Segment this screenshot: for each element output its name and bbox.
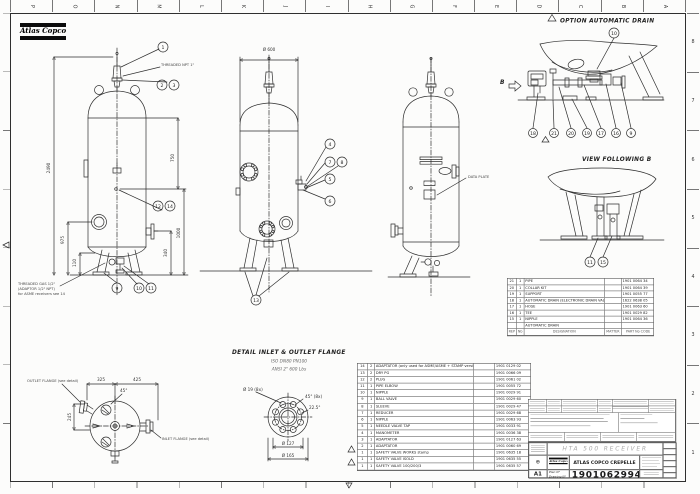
balloon-16: 16: [612, 129, 621, 138]
part-number: 1901 0127 63: [495, 437, 532, 443]
part-number: 1901 0064 39: [622, 285, 655, 291]
part-qty: 1: [368, 410, 375, 416]
part-number: 1901 0029 47: [495, 404, 532, 410]
part-qty: 1: [368, 437, 375, 443]
drain-parts-table: 21 1 PIPE 1901 0064 34 20 1 COLLAR KIT 1…: [507, 278, 654, 336]
part-rep: 20: [508, 285, 517, 291]
part-matter: [474, 417, 495, 423]
part-number: 1901 0029 60: [495, 397, 532, 403]
svg-text:B: B: [500, 80, 505, 86]
part-designation: HOSE: [524, 304, 604, 310]
svg-text:Ø 600: Ø 600: [263, 47, 276, 52]
part-qty: 1: [517, 291, 525, 297]
balloon-3: 3: [169, 80, 179, 90]
part-matter: [474, 397, 495, 403]
part-rep: 2: [358, 443, 368, 449]
svg-text:12: 12: [155, 204, 161, 210]
svg-text:975: 975: [60, 236, 65, 244]
part-qty: 1: [517, 316, 525, 322]
part-qty: 2: [368, 364, 375, 370]
balloon-17: 17: [597, 129, 606, 138]
parts-list-row: 9 1 BALL VALVE 1901 0029 60: [358, 397, 531, 404]
parts-list-row: 2 1 ADAPTATOR 1901 0060 69: [358, 443, 531, 450]
part-rep: 13: [358, 370, 368, 376]
balloon-8: 8: [337, 157, 347, 167]
svg-text:for ASME receivers see 14: for ASME receivers see 14: [18, 292, 66, 296]
part-rep: 18: [508, 298, 517, 304]
svg-text:OPTION AUTOMATIC DRAIN: OPTION AUTOMATIC DRAIN: [560, 19, 654, 25]
parts-list-row: 5 1 NEEDLE VALVE TAP 1901 0033 91: [358, 424, 531, 431]
part-qty: 1: [517, 304, 525, 310]
part-qty: 1: [517, 285, 525, 291]
svg-text:ISO DN80 PN100: ISO DN80 PN100: [271, 359, 307, 365]
part-rep: 11: [358, 384, 368, 390]
parts-list-row: 1 1 SAFETY VALVE ISOLD 1901 0635 55: [358, 457, 531, 464]
header-qty: Nb: [517, 329, 525, 335]
svg-text:45°: 45°: [120, 388, 127, 393]
svg-text:2: 2: [161, 83, 164, 89]
title-block: ⊕ A1 HTA 500 RECEIVER Atlas Copco ATLAS …: [528, 442, 676, 478]
edge-box: [663, 473, 677, 479]
svg-text:11: 11: [148, 286, 154, 292]
part-designation: NIPPLE: [524, 316, 604, 322]
svg-text:9: 9: [630, 131, 633, 137]
part-matter: [474, 364, 495, 370]
parts-list-row: 7 1 REDUCER 1901 0029 68: [358, 410, 531, 417]
part-designation: PIPE: [524, 279, 604, 285]
part-rep: 12: [358, 377, 368, 383]
svg-text:Ø 165: Ø 165: [282, 453, 295, 458]
part-qty: 1: [368, 450, 375, 456]
balloon-10b: 10: [609, 28, 619, 38]
part-rep: 15: [508, 316, 517, 322]
svg-text:10: 10: [611, 31, 617, 37]
part-rep: 14: [358, 364, 368, 370]
balloon-21: 21: [550, 129, 559, 138]
part-matter: [605, 316, 622, 322]
part-designation: SLEEVE: [375, 404, 474, 410]
part-qty: 1: [368, 424, 375, 430]
balloon-13: 13: [251, 295, 261, 305]
part-qty: 1: [368, 430, 375, 436]
svg-text:Ø 127: Ø 127: [282, 441, 295, 446]
balloon-4: 4: [325, 139, 335, 149]
balloon-1: 1: [158, 42, 168, 52]
part-designation: SAFETY VALVE WORKS stamp: [375, 450, 474, 456]
svg-text:HTA 500: HTA 500: [424, 182, 435, 186]
part-matter: [474, 390, 495, 396]
vessel-front-view: Ø 600: [200, 47, 372, 292]
part-number: 1901 0055 72: [495, 384, 532, 390]
parts-list-row: 1 1 SAFETY VALVE 100/200/3 1901 0635 57: [358, 463, 531, 470]
part-qty: 1: [368, 390, 375, 396]
part-rep: 19: [508, 291, 517, 297]
part-designation: SUPPORT: [524, 291, 604, 297]
header-designation: DESIGNATION: [524, 329, 604, 335]
vessel-side-dimensions: 2490 975 110 750 1000 340: [46, 57, 186, 275]
svg-text:16: 16: [613, 131, 619, 137]
svg-text:425: 425: [133, 377, 141, 382]
balloon-20: 20: [567, 129, 576, 138]
part-designation: NEEDLE VALVE TAP: [375, 424, 474, 430]
part-designation: REDUCER: [375, 410, 474, 416]
part-qty: 1: [368, 463, 375, 469]
option-automatic-drain-detail: OPTION AUTOMATIC DRAIN B: [500, 15, 664, 143]
drain-table-header: REP Nb DESIGNATION MATTER PART No CODE: [508, 329, 654, 335]
part-rep: 4: [358, 430, 368, 436]
parts-list-row: 11 1 PIPE ELBOW 1901 0055 72: [358, 384, 531, 391]
part-number: 1901 0060 69: [495, 443, 532, 449]
part-designation: TEE: [524, 310, 604, 316]
balloon-19: 19: [583, 129, 592, 138]
drawing-sheet: PONMLKJIHGFEDCBA 87654321 Atlas Copco: [0, 0, 700, 494]
svg-text:THREADED GAS 1/2": THREADED GAS 1/2": [17, 282, 56, 286]
balloon-14: 14: [165, 201, 175, 211]
svg-text:8: 8: [341, 160, 344, 166]
parts-list-row: 8 1 SLEEVE 1901 0029 47: [358, 404, 531, 411]
svg-text:15: 15: [600, 260, 606, 266]
part-matter: [474, 384, 495, 390]
vessel-side-view: [70, 48, 188, 296]
svg-text:20: 20: [568, 131, 574, 137]
fold-marks: [3, 242, 352, 488]
part-rep: 21: [508, 279, 517, 285]
header-matter: MATTER: [605, 329, 622, 335]
part-designation: NIPPLE: [375, 417, 474, 423]
drawing-label: Drawing N°: [549, 475, 568, 479]
drain-group-label: AUTOMATIC DRAIN: [524, 323, 604, 329]
part-number: 1901 0635 18: [495, 450, 532, 456]
part-rep: 10: [358, 390, 368, 396]
part-qty: 2: [368, 377, 375, 383]
callout-leaders: THREADED NPT 1" THREADED GAS 1/2" (ADAPT…: [17, 49, 338, 296]
parts-list-row: 13 2 DRY PG 1901 0066 09: [358, 370, 531, 377]
part-number: 1622 0638 05: [622, 298, 655, 304]
part-number: 1901 0066 09: [495, 370, 532, 376]
product-title: HTA 500 RECEIVER: [547, 443, 663, 456]
part-qty: 1: [368, 397, 375, 403]
part-qty: 2: [368, 370, 375, 376]
balloon-10: 10: [134, 283, 144, 293]
part-rep: 16: [508, 310, 517, 316]
part-rep: 8: [358, 404, 368, 410]
svg-text:11: 11: [587, 260, 593, 266]
part-rep: 1: [358, 463, 368, 469]
part-designation: ADAPTATOR: [375, 437, 474, 443]
part-matter: [474, 450, 495, 456]
part-number: 1901 0635 57: [495, 463, 532, 469]
svg-text:22.5°: 22.5°: [309, 405, 320, 410]
part-matter: [605, 285, 622, 291]
part-qty: 1: [368, 457, 375, 463]
svg-text:13: 13: [253, 298, 259, 304]
parts-list-row: 12 2 PLUG 1901 0061 02: [358, 377, 531, 384]
balloon-11: 11: [146, 283, 156, 293]
part-rep: 3: [358, 437, 368, 443]
part-designation: BALL VALVE: [375, 397, 474, 403]
balloon-5: 5: [325, 174, 335, 184]
part-designation: MANOMETER: [375, 430, 474, 436]
part-number: 1901 0064 34: [622, 279, 655, 285]
part-number: 1901 0063 60: [622, 304, 655, 310]
balloon-7: 7: [325, 157, 335, 167]
header-rep: REP: [508, 329, 517, 335]
part-matter: [605, 304, 622, 310]
parts-list-row: 1 1 SAFETY VALVE WORKS stamp 1901 0635 1…: [358, 450, 531, 457]
svg-text:245: 245: [67, 413, 72, 421]
vessel-rear-view: HTA 500 DATA PLATE: [388, 57, 490, 296]
part-rep: 1: [358, 450, 368, 456]
part-designation: PIPE ELBOW: [375, 384, 474, 390]
part-designation: NIPPLE: [375, 390, 474, 396]
part-matter: [474, 370, 495, 376]
svg-text:14: 14: [167, 204, 173, 210]
part-rep: 5: [358, 424, 368, 430]
parts-list-table: 14 2 ADAPTATOR (only used for ASME/ASME …: [357, 363, 531, 471]
flange-detail: DETAIL INLET & OUTLET FLANGE ISO DN80 PN…: [232, 350, 355, 465]
balloon-12: 12: [153, 201, 163, 211]
svg-text:340: 340: [163, 249, 168, 257]
part-matter: [605, 298, 622, 304]
parts-list-row: 6 1 NIPPLE 1901 0063 93: [358, 417, 531, 424]
part-number: 1901 0129 02: [495, 364, 532, 370]
company-name: ATLAS COPCO CREPELLE: [569, 455, 639, 469]
ownership-stamp: [640, 455, 663, 469]
part-number: 1901 0064 36: [622, 316, 655, 322]
svg-text:5: 5: [329, 177, 332, 183]
drawing-number-labels: Plan N° Drawing N°: [547, 470, 569, 479]
parts-list-row: 10 1 NIPPLE 1901 0029 91: [358, 390, 531, 397]
svg-text:9: 9: [116, 286, 119, 292]
svg-text:ANSI 2" 600 Lbs: ANSI 2" 600 Lbs: [271, 367, 307, 373]
title-block-cell: [640, 470, 663, 479]
part-qty: 1: [368, 384, 375, 390]
part-designation: SAFETY VALVE 100/200/3: [375, 463, 474, 469]
part-matter: [474, 443, 495, 449]
part-number: 1901 0029 91: [495, 390, 532, 396]
svg-text:THREADED NPT 1": THREADED NPT 1": [160, 63, 195, 67]
svg-text:45° (8x): 45° (8x): [305, 394, 323, 399]
svg-text:110: 110: [72, 259, 77, 267]
part-qty: 1: [517, 298, 525, 304]
title-block-logo: Atlas Copco: [547, 455, 569, 469]
svg-text:3: 3: [173, 83, 176, 89]
svg-text:OUTLET FLANGE (see detail): OUTLET FLANGE (see detail): [27, 379, 79, 383]
part-number: 1901 0029 68: [495, 410, 532, 416]
part-number: 1901 0063 93: [495, 417, 532, 423]
svg-text:10: 10: [136, 286, 142, 292]
header-part: PART No CODE: [622, 329, 655, 335]
part-qty: 1: [368, 404, 375, 410]
parts-list-row: 4 1 MANOMETER 1901 0036 38: [358, 430, 531, 437]
part-number: 1901 0036 38: [495, 430, 532, 436]
svg-text:Ø 19 (8x): Ø 19 (8x): [243, 387, 263, 392]
svg-text:1: 1: [162, 45, 165, 51]
part-qty: 1: [368, 417, 375, 423]
svg-text:(ADAPTOR 1/2" NPT): (ADAPTOR 1/2" NPT): [18, 287, 55, 291]
balloon-callouts: 1 2 3 12 14 9 10 11 4 7 8 5 6 13 10 18 2…: [112, 28, 636, 305]
part-number: 1901 0635 55: [495, 457, 532, 463]
svg-text:750: 750: [170, 154, 175, 162]
view-following-b-detail: VIEW FOLLOWING B: [540, 157, 664, 257]
part-number: 1901 0033 91: [495, 424, 532, 430]
balloon-15: 15: [598, 257, 608, 267]
svg-text:21: 21: [551, 131, 557, 137]
part-designation: DRY PG: [375, 370, 474, 376]
part-number: 1901 0055 77: [622, 291, 655, 297]
part-matter: [474, 410, 495, 416]
svg-text:7: 7: [329, 160, 332, 166]
svg-text:2490: 2490: [46, 162, 51, 173]
part-matter: [474, 424, 495, 430]
drawing-number: 1901062994: [569, 470, 639, 479]
part-matter: [474, 463, 495, 469]
part-matter: [474, 457, 495, 463]
svg-text:DETAIL INLET & OUTLET FLANGE: DETAIL INLET & OUTLET FLANGE: [232, 350, 346, 356]
projection-symbol-icon: ⊕: [529, 455, 548, 469]
vessel-top-view: 325 425 45° 245 OUTLET FLANGE (see detai…: [27, 377, 210, 463]
part-matter: [474, 377, 495, 383]
revision-block: [528, 399, 676, 442]
part-matter: [605, 279, 622, 285]
part-designation: AUTOMATIC DRAIN (ELECTRONIC DRAIN VALVE)…: [524, 298, 604, 304]
svg-text:1000: 1000: [176, 227, 181, 238]
part-designation: PLUG: [375, 377, 474, 383]
balloon-11b: 11: [585, 257, 595, 267]
title-block-cell: [529, 443, 548, 456]
svg-text:4: 4: [329, 142, 332, 148]
part-rep: 17: [508, 304, 517, 310]
part-matter: [474, 404, 495, 410]
part-qty: 1: [517, 279, 525, 285]
sheet-format: A1: [529, 470, 548, 479]
svg-text:DATA PLATE: DATA PLATE: [468, 175, 490, 179]
svg-text:VIEW FOLLOWING B: VIEW FOLLOWING B: [582, 157, 652, 163]
svg-text:19: 19: [584, 131, 590, 137]
part-matter: [605, 310, 622, 316]
balloon-18: 18: [529, 129, 538, 138]
part-designation: COLLAR KIT: [524, 285, 604, 291]
svg-text:INLET FLANGE (see detail): INLET FLANGE (see detail): [162, 437, 210, 441]
svg-text:325: 325: [97, 377, 105, 382]
part-number: 1901 0029 82: [622, 310, 655, 316]
part-number: 1901 0061 02: [495, 377, 532, 383]
part-qty: 1: [517, 310, 525, 316]
parts-list-row: 14 2 ADAPTATOR (only used for ASME/ASME …: [358, 364, 531, 371]
part-matter: [605, 291, 622, 297]
svg-text:18: 18: [530, 131, 536, 137]
balloon-9b: 9: [627, 129, 636, 138]
part-rep: 9: [358, 397, 368, 403]
part-qty: 1: [368, 443, 375, 449]
part-matter: [474, 437, 495, 443]
part-rep: 6: [358, 417, 368, 423]
part-matter: [474, 430, 495, 436]
parts-list-row: 3 1 ADAPTATOR 1901 0127 63: [358, 437, 531, 444]
part-designation: ADAPTATOR: [375, 443, 474, 449]
part-rep: 1: [358, 457, 368, 463]
part-designation: ADAPTATOR (only used for ASME/ASME + STA…: [375, 364, 474, 370]
part-rep: 7: [358, 410, 368, 416]
balloon-6: 6: [325, 196, 335, 206]
svg-text:17: 17: [598, 131, 604, 137]
svg-text:6: 6: [329, 199, 332, 205]
part-designation: SAFETY VALVE ISOLD: [375, 457, 474, 463]
